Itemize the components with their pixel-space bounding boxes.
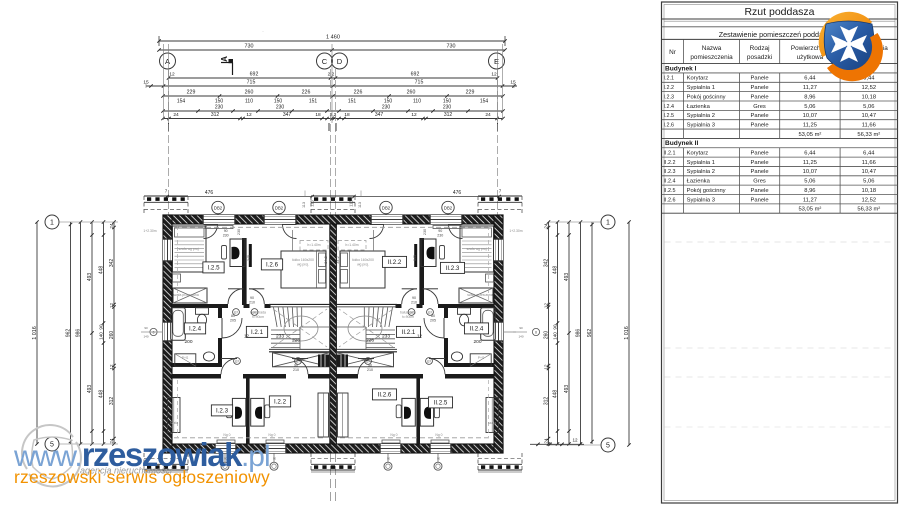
svg-text:493: 493 [87,273,93,282]
svg-text:h=90cm: h=90cm [402,315,414,319]
svg-text:Panele: Panele [751,169,769,175]
svg-text:200: 200 [473,339,481,345]
svg-text:230: 230 [215,104,224,110]
svg-text:312: 312 [444,112,453,118]
svg-text:730: 730 [447,43,456,49]
svg-text:140: 140 [98,332,103,340]
svg-text:11,66: 11,66 [862,160,876,166]
svg-text:II.2.1: II.2.1 [664,151,676,157]
svg-text:szafa przesuwna: szafa przesuwna [173,293,199,297]
svg-text:140: 140 [518,335,523,339]
svg-text:szafa przesuwna: szafa przesuwna [467,293,493,297]
svg-text:260: 260 [109,331,115,340]
svg-text:Łazienka: Łazienka [687,179,711,185]
svg-text:312: 312 [109,397,115,406]
svg-text:Łazienka: Łazienka [687,104,711,110]
svg-text:Zestawienie pomieszczeń poddas: Zestawienie pomieszczeń poddasza [719,30,834,39]
svg-text:1 460: 1 460 [326,35,340,41]
svg-text:I.2.5: I.2.5 [664,113,675,119]
svg-text:12: 12 [491,72,497,78]
svg-text:692: 692 [411,72,420,78]
svg-text:h=1.40m: h=1.40m [307,243,320,247]
svg-text:5,06: 5,06 [863,179,874,185]
svg-text:15: 15 [510,80,516,86]
svg-text:12: 12 [109,364,114,370]
svg-text:90: 90 [294,364,298,368]
svg-text:493: 493 [564,273,570,282]
svg-text:Pokój gościnny: Pokój gościnny [687,94,726,100]
svg-text:226: 226 [302,89,311,95]
svg-text:II.2.2: II.2.2 [664,160,676,166]
svg-text:10,18: 10,18 [862,94,877,100]
svg-text:P+S: P+S [182,356,189,360]
svg-text:1+2.30m: 1+2.30m [509,229,522,233]
svg-text:12: 12 [109,303,114,309]
svg-text:Panele: Panele [751,94,769,100]
svg-text:I.2.1: I.2.1 [664,76,675,82]
svg-text:90: 90 [552,324,557,330]
svg-text:Panele: Panele [751,197,769,203]
svg-text:12,52: 12,52 [862,85,877,91]
svg-text:90: 90 [437,457,441,461]
svg-text:łóżko 160x200: łóżko 160x200 [292,258,314,262]
svg-text:P+S: P+S [478,356,485,360]
svg-text:448: 448 [98,390,104,399]
svg-text:Pokój gościnny: Pokój gościnny [687,188,726,194]
svg-text:Sypialnia 1: Sypialnia 1 [687,160,715,166]
svg-text:151: 151 [348,99,357,105]
svg-text:476: 476 [205,190,214,196]
svg-text:A: A [220,56,229,62]
svg-text:233: 233 [382,334,390,340]
svg-text:151: 151 [309,99,318,105]
svg-text:1+2.30m: 1+2.30m [143,229,156,233]
svg-text:2 2: 2 2 [328,72,335,78]
svg-text:Panele: Panele [751,151,769,157]
svg-text:Panele: Panele [751,85,769,91]
svg-text:90: 90 [387,457,391,461]
svg-text:90: 90 [144,326,148,330]
svg-text:260: 260 [407,89,416,95]
svg-text:Gres: Gres [753,104,766,110]
svg-text:24: 24 [173,112,179,118]
svg-text:II.2.4: II.2.4 [470,326,484,333]
svg-text:1: 1 [606,220,610,227]
svg-text:h=90cm: h=90cm [252,315,264,319]
svg-text:210: 210 [293,368,299,372]
svg-text:233: 233 [276,334,284,340]
svg-text:10,47: 10,47 [862,169,877,175]
svg-text:użytkowa: użytkowa [797,54,824,61]
svg-text:szafa: szafa [488,421,496,425]
svg-text:229: 229 [466,89,475,95]
svg-text:12: 12 [572,438,578,443]
svg-text:5,06: 5,06 [804,179,815,185]
svg-text:5,06: 5,06 [863,104,874,110]
svg-text:Sypialnia 3: Sypialnia 3 [687,122,715,128]
svg-text:18: 18 [344,112,350,118]
svg-text:229: 229 [187,89,196,95]
svg-text:Ng 0: Ng 0 [268,433,275,437]
svg-text:I.2.1: I.2.1 [251,329,264,336]
svg-text:DB2: DB2 [275,206,284,211]
svg-text:I.2.2: I.2.2 [274,399,287,406]
svg-text:I.2.6: I.2.6 [266,262,279,269]
svg-text:962: 962 [65,329,71,338]
svg-text:II.2.3: II.2.3 [664,169,676,175]
svg-text:962: 962 [587,329,593,338]
svg-text:715: 715 [247,80,256,86]
svg-text:230: 230 [276,104,285,110]
svg-text:260: 260 [543,331,549,340]
svg-text:226: 226 [354,89,363,95]
svg-text:.: . [263,29,264,33]
svg-text:wg proj.: wg proj. [357,263,369,267]
svg-text:345: 345 [247,255,251,261]
svg-text:12: 12 [246,112,252,118]
svg-text:pomieszczenia: pomieszczenia [690,54,733,61]
svg-text:18: 18 [315,112,321,118]
svg-text:312: 312 [211,112,220,118]
svg-text:140: 140 [143,335,148,339]
svg-text:5: 5 [606,443,610,450]
svg-text:10,47: 10,47 [862,113,877,119]
svg-text:12: 12 [169,72,175,78]
svg-text:113: 113 [310,199,315,206]
svg-text:balustrada: balustrada [400,311,416,315]
svg-text:Sypialnia 1: Sypialnia 1 [687,85,715,91]
svg-text:Budynek II: Budynek II [665,140,699,147]
svg-text:DB2: DB2 [214,206,223,211]
svg-text:230: 230 [443,104,452,110]
svg-text:230: 230 [237,229,241,235]
svg-text:DB2: DB2 [444,206,453,211]
svg-text:I.2.6: I.2.6 [664,122,675,128]
svg-text:Nr: Nr [669,49,677,56]
svg-text:205: 205 [430,319,436,323]
svg-text:80: 80 [431,314,435,318]
svg-text:230: 230 [382,104,391,110]
svg-text:Sypialnia 2: Sypialnia 2 [687,169,715,175]
svg-text:Korytarz: Korytarz [687,76,709,82]
svg-text:1 016: 1 016 [624,326,630,340]
svg-text:II.2.6: II.2.6 [664,197,676,203]
svg-text:34.2: 34.2 [336,256,340,263]
svg-text:D7: D7 [427,359,431,363]
svg-text:34.2: 34.2 [324,256,328,263]
svg-text:balustrada: balustrada [250,311,266,315]
svg-text:24: 24 [543,438,548,444]
svg-text:Sypialnia 3: Sypialnia 3 [687,197,715,203]
svg-text:448: 448 [552,266,558,275]
svg-text:56,33 m²: 56,33 m² [857,132,880,138]
svg-text:Ng 0: Ng 0 [435,433,442,437]
svg-text:II.2.1: II.2.1 [402,329,416,336]
svg-text:110: 110 [413,99,421,105]
svg-text:Panele: Panele [751,113,769,119]
svg-text:12,52: 12,52 [862,197,877,203]
svg-text:E: E [494,57,499,66]
svg-text:8,96: 8,96 [804,188,815,194]
svg-text:53,05 m²: 53,05 m² [798,207,821,213]
svg-text:6,44: 6,44 [804,151,816,157]
svg-text:230: 230 [437,233,443,237]
svg-text:Panele: Panele [751,160,769,166]
svg-text:Nazwa: Nazwa [702,45,722,52]
svg-text:493: 493 [87,385,93,394]
svg-text:12: 12 [417,334,422,339]
svg-text:986: 986 [575,329,581,338]
svg-text:Budynek I: Budynek I [665,65,697,72]
svg-text:h=1.40m: h=1.40m [345,243,358,247]
svg-text:11,66: 11,66 [862,122,876,128]
svg-text:11,27: 11,27 [803,197,817,203]
svg-text:448: 448 [98,266,104,275]
svg-text:Panele: Panele [751,188,769,194]
svg-text:I.2.4: I.2.4 [664,104,675,110]
svg-text:10,07: 10,07 [803,169,818,175]
svg-text:230: 230 [423,229,427,235]
svg-text:II.2.6: II.2.6 [378,392,392,399]
svg-text:szafa wg proj.: szafa wg proj. [179,247,200,251]
svg-text:C: C [322,57,328,66]
svg-text:6,44: 6,44 [863,151,875,157]
svg-text:Rodzaj: Rodzaj [750,45,770,52]
svg-text:Panele: Panele [751,76,769,82]
svg-text:342: 342 [109,259,115,268]
svg-text:II.2.2: II.2.2 [388,259,402,266]
svg-text:Korytarz: Korytarz [687,151,709,157]
svg-text:I.2.3: I.2.3 [216,408,229,415]
svg-text:345: 345 [413,255,417,261]
svg-text:Ng 0: Ng 0 [390,433,397,437]
svg-text:12: 12 [543,303,548,309]
svg-text:226: 226 [366,338,374,344]
svg-text:476: 476 [453,190,462,196]
svg-text:Panele: Panele [751,122,769,128]
svg-text:260: 260 [245,89,254,95]
svg-text:24: 24 [543,223,548,229]
svg-text:90: 90 [368,364,372,368]
svg-text:11,25: 11,25 [803,122,817,128]
svg-text:10,07: 10,07 [803,113,818,119]
svg-text:154: 154 [480,99,489,105]
svg-text:210: 210 [411,301,417,305]
svg-text:5,06: 5,06 [804,104,815,110]
svg-text:12: 12 [543,364,548,370]
svg-text:szafa: szafa [170,421,178,425]
svg-text:łóżko 160x200: łóżko 160x200 [352,258,374,262]
svg-text:312: 312 [543,397,549,406]
svg-text:493: 493 [564,385,570,394]
svg-text:986: 986 [75,329,81,338]
svg-text:12: 12 [411,112,417,118]
svg-text:II.2.4: II.2.4 [664,179,676,185]
svg-text:210: 210 [249,301,255,305]
svg-text:posadzki: posadzki [747,54,772,61]
svg-text:205: 205 [230,319,236,323]
svg-text:230: 230 [223,233,229,237]
svg-text:113: 113 [358,202,362,208]
svg-text:I.2.3: I.2.3 [664,94,675,100]
svg-text:6,44: 6,44 [804,76,816,82]
svg-text:I.2.5: I.2.5 [207,265,220,272]
svg-text:200: 200 [184,339,192,345]
svg-text:Rzut poddasza: Rzut poddasza [744,6,814,18]
svg-text:90: 90 [412,296,416,300]
svg-text:448: 448 [552,390,558,399]
svg-text:154: 154 [177,99,186,105]
svg-text:I.2.4: I.2.4 [189,326,202,333]
svg-text:90: 90 [98,324,103,330]
svg-text:226: 226 [292,338,300,344]
svg-text:D7: D7 [235,359,239,363]
svg-text:11,25: 11,25 [803,160,817,166]
svg-text:113: 113 [302,202,306,208]
svg-text:wg proj.: wg proj. [297,263,309,267]
svg-text:D: D [337,57,343,66]
svg-text:Gres: Gres [753,179,766,185]
svg-text:10,18: 10,18 [862,188,877,194]
svg-text:I.2.2: I.2.2 [664,85,675,91]
svg-text:rzeszowski serwis ogłoszeniowy: rzeszowski serwis ogłoszeniowy [14,467,270,487]
svg-text:II.2.3: II.2.3 [446,265,460,272]
svg-text:DB2: DB2 [382,206,391,211]
svg-text:730: 730 [245,43,254,49]
svg-text:692: 692 [250,72,259,78]
svg-text:90: 90 [250,296,254,300]
svg-text:342: 342 [543,259,549,268]
svg-text:A: A [165,57,170,66]
svg-text:1 016: 1 016 [32,326,38,340]
svg-text:90: 90 [519,326,523,330]
svg-text:8,96: 8,96 [804,94,815,100]
svg-text:II.2.5: II.2.5 [664,188,676,194]
svg-text:11,27: 11,27 [803,85,817,91]
svg-text:715: 715 [415,80,424,86]
svg-text:53,05 m²: 53,05 m² [798,132,821,138]
svg-text:110: 110 [245,99,253,105]
svg-text:24: 24 [485,112,491,118]
svg-text:90: 90 [273,457,277,461]
svg-text:24: 24 [109,223,114,229]
svg-text:II.2.5: II.2.5 [434,400,448,407]
svg-text:szafa wg proj.: szafa wg proj. [467,247,488,251]
svg-text:56,33 m²: 56,33 m² [857,207,880,213]
svg-text:140: 140 [552,332,557,340]
svg-text:347: 347 [283,112,292,118]
svg-text:8: 8 [535,330,537,334]
svg-text:347: 347 [375,112,384,118]
svg-text:Sypialnia 2: Sypialnia 2 [687,113,715,119]
svg-text:12: 12 [244,334,249,339]
svg-text:1: 1 [50,220,54,227]
svg-text:80: 80 [231,314,235,318]
svg-text:210: 210 [367,368,373,372]
